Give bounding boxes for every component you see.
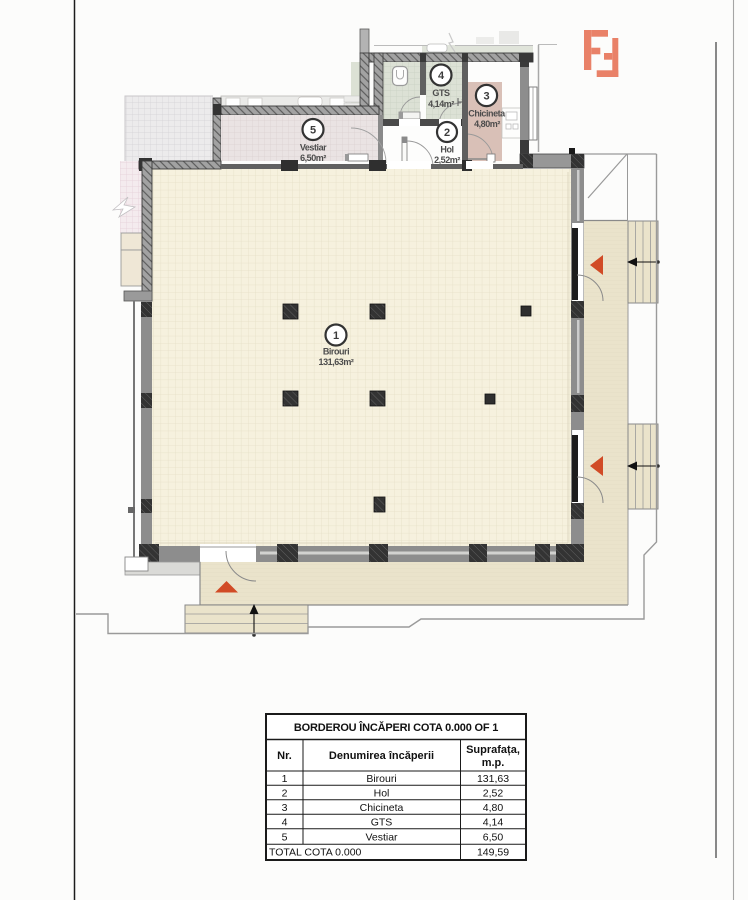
svg-text:2,52m²: 2,52m² — [434, 155, 460, 165]
svg-text:4,80: 4,80 — [483, 802, 504, 814]
svg-text:1: 1 — [333, 330, 339, 342]
svg-text:Suprafața,: Suprafața, — [466, 744, 520, 756]
svg-text:Chicineta: Chicineta — [360, 802, 404, 814]
svg-text:TOTAL COTA 0.000: TOTAL COTA 0.000 — [269, 847, 362, 859]
svg-text:GTS: GTS — [371, 817, 393, 829]
svg-text:Chicineta: Chicineta — [468, 109, 506, 119]
svg-text:5: 5 — [310, 125, 316, 137]
svg-text:4,80m²: 4,80m² — [474, 119, 500, 129]
svg-text:4: 4 — [438, 70, 445, 82]
svg-text:5: 5 — [282, 832, 288, 844]
svg-text:Birouri: Birouri — [366, 773, 396, 785]
svg-text:131,63m²: 131,63m² — [319, 357, 354, 367]
svg-text:149,59: 149,59 — [477, 847, 509, 859]
svg-text:Vestiar: Vestiar — [365, 832, 398, 844]
svg-text:Hol: Hol — [374, 788, 390, 800]
svg-text:1: 1 — [282, 773, 288, 785]
svg-text:2: 2 — [444, 127, 450, 139]
svg-text:Vestiar: Vestiar — [300, 143, 327, 153]
svg-text:4,14m²: 4,14m² — [428, 99, 454, 109]
svg-text:Nr.: Nr. — [277, 750, 292, 762]
svg-text:4: 4 — [282, 817, 288, 829]
svg-text:6,50: 6,50 — [483, 832, 504, 844]
svg-text:GTS: GTS — [432, 88, 450, 98]
svg-text:Hol: Hol — [440, 145, 453, 155]
svg-text:Denumirea încăperii: Denumirea încăperii — [329, 750, 434, 762]
svg-text:4,14: 4,14 — [483, 817, 504, 829]
svg-text:BORDEROU ÎNCĂPERI COTA 0.000 O: BORDEROU ÎNCĂPERI COTA 0.000 OF 1 — [294, 721, 498, 734]
svg-text:Birouri: Birouri — [323, 347, 349, 357]
svg-text:2,52: 2,52 — [483, 788, 504, 800]
svg-text:3: 3 — [282, 802, 288, 814]
svg-text:3: 3 — [483, 91, 489, 103]
svg-text:m.p.: m.p. — [482, 757, 505, 769]
svg-text:131,63: 131,63 — [477, 773, 509, 785]
svg-text:2: 2 — [282, 788, 288, 800]
svg-text:6,50m²: 6,50m² — [300, 153, 326, 163]
